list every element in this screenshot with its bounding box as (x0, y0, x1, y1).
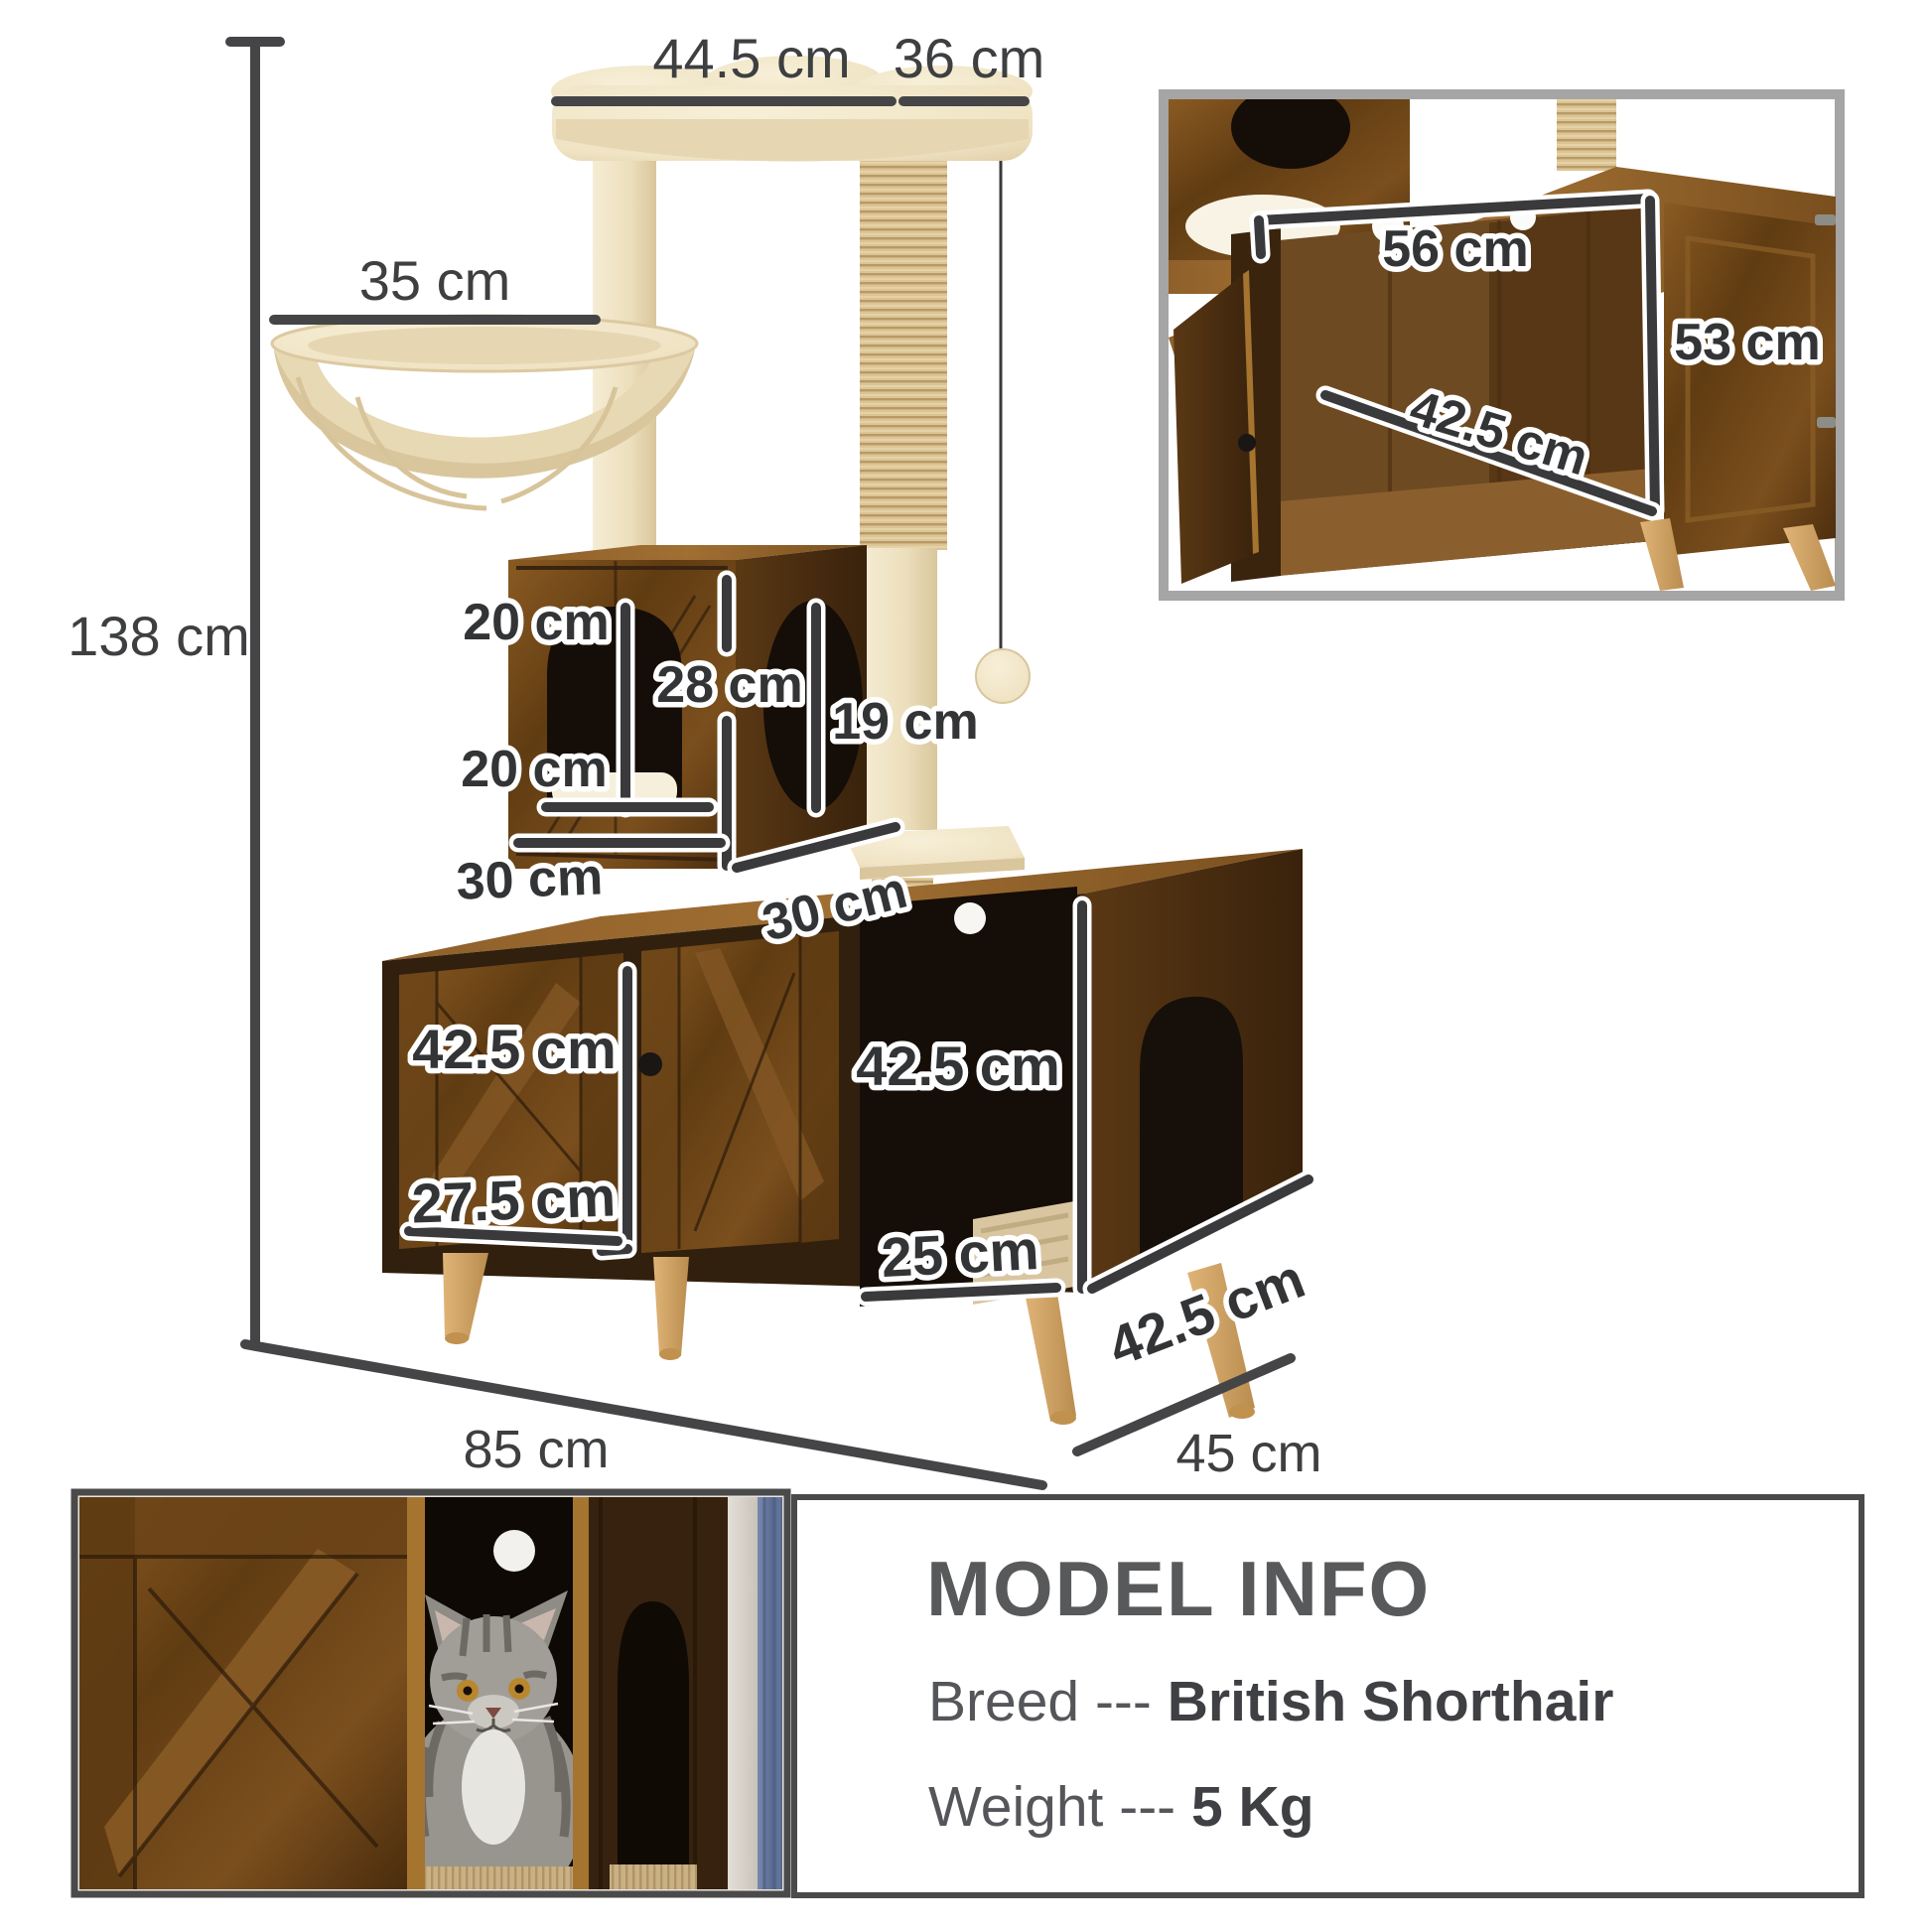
dim-label-condo-hole-height: 20 cm (463, 594, 609, 651)
weight-value: 5 Kg (1191, 1775, 1314, 1839)
model-info-title: MODEL INFO (926, 1544, 1431, 1634)
dim-label-opening-height: 42.5 cm (856, 1035, 1060, 1097)
dim-label-condo-width: 30 cm (456, 848, 604, 910)
dim-label-top-width: 44.5 cm (652, 27, 850, 89)
photo-content (79, 1497, 787, 1911)
dim-label-inset-height: 53 cm (1674, 314, 1820, 371)
dim-base-depth: 45 cm (1077, 1358, 1322, 1483)
cat-tree-illustration: 138 cm 44.5 cm 36 cm 35 cm 20 cm 28 cm (68, 27, 1321, 1485)
model-info-panel: MODEL INFO Breed --- British Shorthair W… (791, 1494, 1864, 1898)
product-dimension-sheet: 138 cm 44.5 cm 36 cm 35 cm 20 cm 28 cm (0, 0, 1932, 1932)
right-plush-column (860, 548, 937, 830)
breed-row: Breed --- British Shorthair (928, 1669, 1613, 1734)
door-knob (638, 1052, 662, 1076)
dim-label-door-width: 27.5 cm (411, 1165, 618, 1234)
photo-vent-hole (493, 1530, 535, 1572)
dim-label-opening-width: 25 cm (880, 1218, 1040, 1289)
dim-label-inset-width: 56 cm (1382, 220, 1528, 278)
photo-side-arch (618, 1601, 689, 1872)
breed-value: British Shorthair (1168, 1670, 1614, 1733)
dim-base-width: 85 cm (245, 1344, 1042, 1485)
dim-label-door-height: 42.5 cm (412, 1018, 617, 1080)
dim-label-condo-side-hole: 19 cm (832, 693, 978, 751)
dim-label-total-height: 138 cm (68, 605, 250, 667)
cat-photo (74, 1492, 787, 1911)
breed-label: Breed --- (928, 1670, 1152, 1733)
right-sisal-post (860, 151, 947, 550)
dim-label-condo-inner-height: 28 cm (656, 656, 802, 714)
dim-opening-width: 25 cm (866, 1218, 1056, 1297)
middle-door (638, 931, 839, 1253)
inset-detail: 56 cm 53 cm 42.5 cm (1164, 85, 1840, 596)
dim-label-base-width: 85 cm (463, 1420, 609, 1479)
weight-row: Weight --- 5 Kg (928, 1774, 1314, 1840)
dim-label-hammock: 35 cm (359, 249, 511, 312)
dim-label-base-depth: 45 cm (1175, 1424, 1321, 1483)
dim-label-condo-hole-width: 20 cm (461, 741, 607, 798)
weight-label: Weight --- (928, 1775, 1175, 1839)
dim-total-height: 138 cm (68, 42, 280, 1342)
dim-label-top-depth: 36 cm (894, 27, 1045, 89)
vent-hole (954, 902, 986, 934)
toy-ball (976, 649, 1030, 703)
